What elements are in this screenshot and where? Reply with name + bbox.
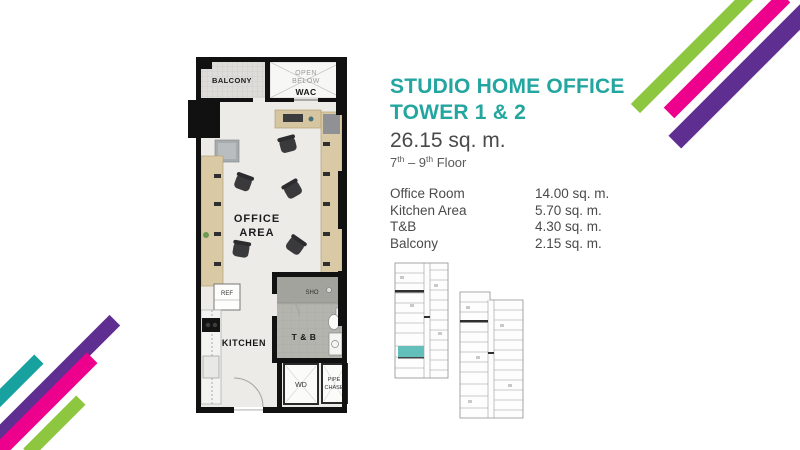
floor-separator: – [404,155,418,170]
page-title: STUDIO HOME OFFICE TOWER 1 & 2 [390,74,650,126]
area-breakdown-table: Office Room 14.00 sq. m. Kitchen Area 5.… [390,186,650,252]
floor-from-sup: th [397,154,404,164]
table-row: T&B 4.30 sq. m. [390,219,650,236]
floorplan-slide: BALCONY OPEN BELOW WAC OFFICE AREA REF K… [0,0,800,450]
top-right-stripes [631,0,800,149]
table-row: Office Room 14.00 sq. m. [390,186,650,203]
row-value: 2.15 sq. m. [535,236,635,253]
table-row: Kitchen Area 5.70 sq. m. [390,203,650,220]
row-label: T&B [390,219,535,236]
keyplan [388,258,528,424]
row-value: 14.00 sq. m. [535,186,635,203]
unit-info: STUDIO HOME OFFICE TOWER 1 & 2 26.15 sq.… [390,74,650,252]
unit-floorplan: BALCONY OPEN BELOW WAC OFFICE AREA REF K… [187,56,349,414]
floor-to-sup: th [426,154,433,164]
ref-label: REF [221,291,233,297]
floor-suffix: Floor [433,155,466,170]
row-label: Office Room [390,186,535,203]
kitchen-counter [201,310,221,404]
pipe-chase-label-2: CHASE [325,385,344,391]
top-credenza [275,110,321,128]
office-area-label-1: OFFICE [234,213,280,225]
stripe-green-icon [23,396,85,450]
floor-to: 9 [419,155,426,170]
sink-icon [203,356,219,378]
office-area-label-2: AREA [239,227,274,239]
keyplan-tower-2 [460,292,523,418]
plant-icon [203,232,209,238]
floor-range: 7th – 9th Floor [390,155,650,172]
pipe-chase-label-1: PIPE [328,377,341,383]
toilet-bath-label: T & B [292,332,317,342]
shower-head-icon [327,288,332,293]
stripe-teal-icon [0,355,43,442]
stripe-magenta-icon [0,353,97,450]
stripe-purple-icon [668,1,800,148]
stripe-purple-icon [0,315,120,450]
row-value: 4.30 sq. m. [535,219,635,236]
total-area: 26.15 sq. m. [390,129,650,153]
row-value: 5.70 sq. m. [535,203,635,220]
row-label: Balcony [390,236,535,253]
title-line-1: STUDIO HOME OFFICE [390,75,625,98]
left-desk-row [201,156,223,286]
row-label: Kitchen Area [390,203,535,220]
open-below-label-1: OPEN [295,70,317,77]
table-row: Balcony 2.15 sq. m. [390,236,650,253]
title-line-2: TOWER 1 & 2 [390,101,526,124]
balcony-label: BALCONY [212,76,252,85]
washer-dryer-label: WD [295,382,307,389]
kitchen-label: KITCHEN [222,338,266,348]
refrigerator [214,284,240,310]
bottom-left-stripes [0,315,120,450]
wac-label: WAC [295,87,316,97]
stove-icon [202,318,220,332]
open-below-label-2: BELOW [292,78,320,85]
highlighted-unit [398,346,424,357]
vanity-sink-icon [329,333,342,355]
shower-label: SHO [305,290,318,296]
stripe-magenta-icon [664,0,791,118]
keyplan-tower-1 [395,263,448,378]
